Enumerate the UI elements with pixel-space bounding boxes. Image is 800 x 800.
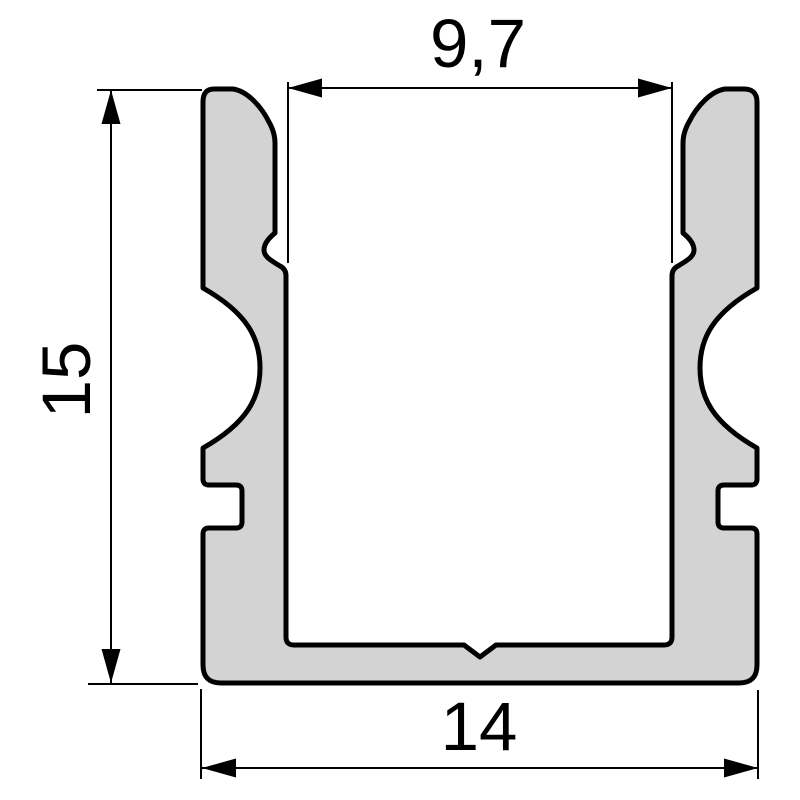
profile-cross-section (203, 89, 757, 683)
dimension-label-outer-width: 14 (441, 688, 518, 765)
arrowhead-right-icon (638, 79, 672, 98)
arrowhead-right-icon (724, 759, 758, 778)
technical-drawing: 9,7 15 14 (0, 0, 800, 800)
dimension-inner-width: 9,7 (288, 5, 672, 263)
dimension-label-inner-width: 9,7 (430, 5, 526, 82)
arrowhead-left-icon (202, 759, 236, 778)
arrowhead-left-icon (288, 79, 322, 98)
arrowhead-up-icon (102, 90, 121, 124)
drawing-canvas: 9,7 15 14 (0, 0, 800, 800)
dimension-label-height: 15 (28, 342, 105, 419)
dimension-height: 15 (28, 90, 202, 684)
dimension-outer-width: 14 (201, 688, 758, 779)
arrowhead-down-icon (102, 649, 121, 683)
